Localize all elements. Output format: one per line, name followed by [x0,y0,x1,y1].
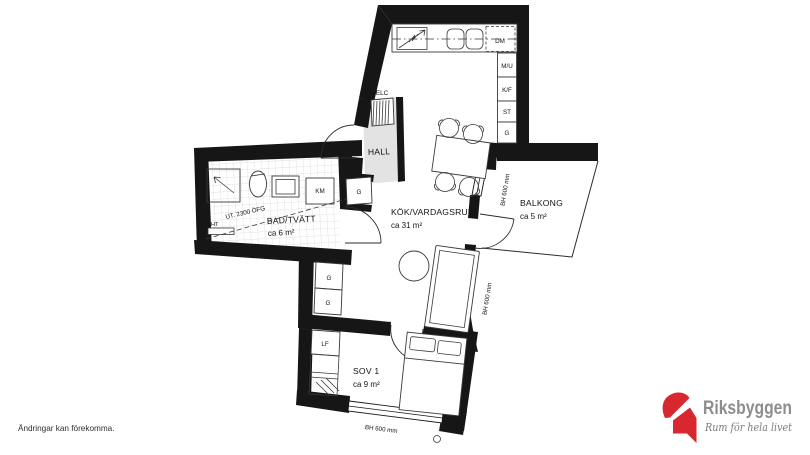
cabinet-kf-label: K/F [502,87,512,94]
wardrobe-label: G [327,275,332,282]
tall-cabinet-column: M/U K/F ST G [498,53,517,143]
bed [399,332,467,416]
kitchen-counter: DM [392,24,517,52]
cabinet-st-label: ST [503,109,511,116]
living-wardrobes: G G [314,262,343,315]
floorplan-page: DM M/U K/F ST G [0,0,810,455]
bathroom-door-arc [345,207,381,243]
window-height-annotation: BH 600 mm [500,173,512,206]
room-label-hall: HALL [368,146,391,157]
disclaimer-text: Ändringar kan förekomma. [18,423,114,433]
room-label-bedroom: SOV 1 [353,366,379,376]
brand-tagline: Rum för hela livet [704,420,792,434]
window-height-annotation: BH 600 mm [482,282,494,315]
room-label-kitchen-living: KÖK/VARDAGSRUM [391,207,475,217]
elc-label: ELC [376,90,389,97]
lf-label: LF [321,341,329,348]
wardrobe-label: G [326,300,331,307]
lf-closet: LF [309,330,340,396]
riksbyggen-logo-mark [663,393,697,443]
hall-wardrobe: G [346,177,372,205]
floorplan-drawing: DM M/U K/F ST G [0,0,810,455]
washing-machine: KM [306,178,334,204]
room-area-bedroom: ca 9 m² [353,380,380,389]
dishwasher-label: DM [495,38,505,45]
room-area-balcony: ca 5 m² [520,212,547,221]
exterior-column-marker [434,436,441,443]
toilet [250,171,267,197]
cabinet-g-label: G [505,130,510,137]
balcony-door-arc [475,214,514,248]
round-table [399,251,429,281]
cabinet-mu-label: M/U [501,63,513,70]
towel-dryer-label: HT [211,222,219,228]
brand-name: Riksbyggen [703,398,792,419]
dining-table [432,135,490,178]
window-height-annotation: BH 600 mm [365,424,398,435]
hall-wardrobe-label: G [357,189,362,196]
washing-machine-label: KM [315,188,324,195]
dining-chair [434,173,455,192]
room-label-balcony: BALKONG [520,198,563,208]
room-area-bathroom: ca 6 m² [268,228,295,238]
room-area-kitchen-living: ca 31 m² [391,221,422,230]
washbasin [272,176,299,197]
riksbyggen-logo: Riksbyggen Rum för hela livet [663,393,793,443]
dining-chair [438,119,459,138]
